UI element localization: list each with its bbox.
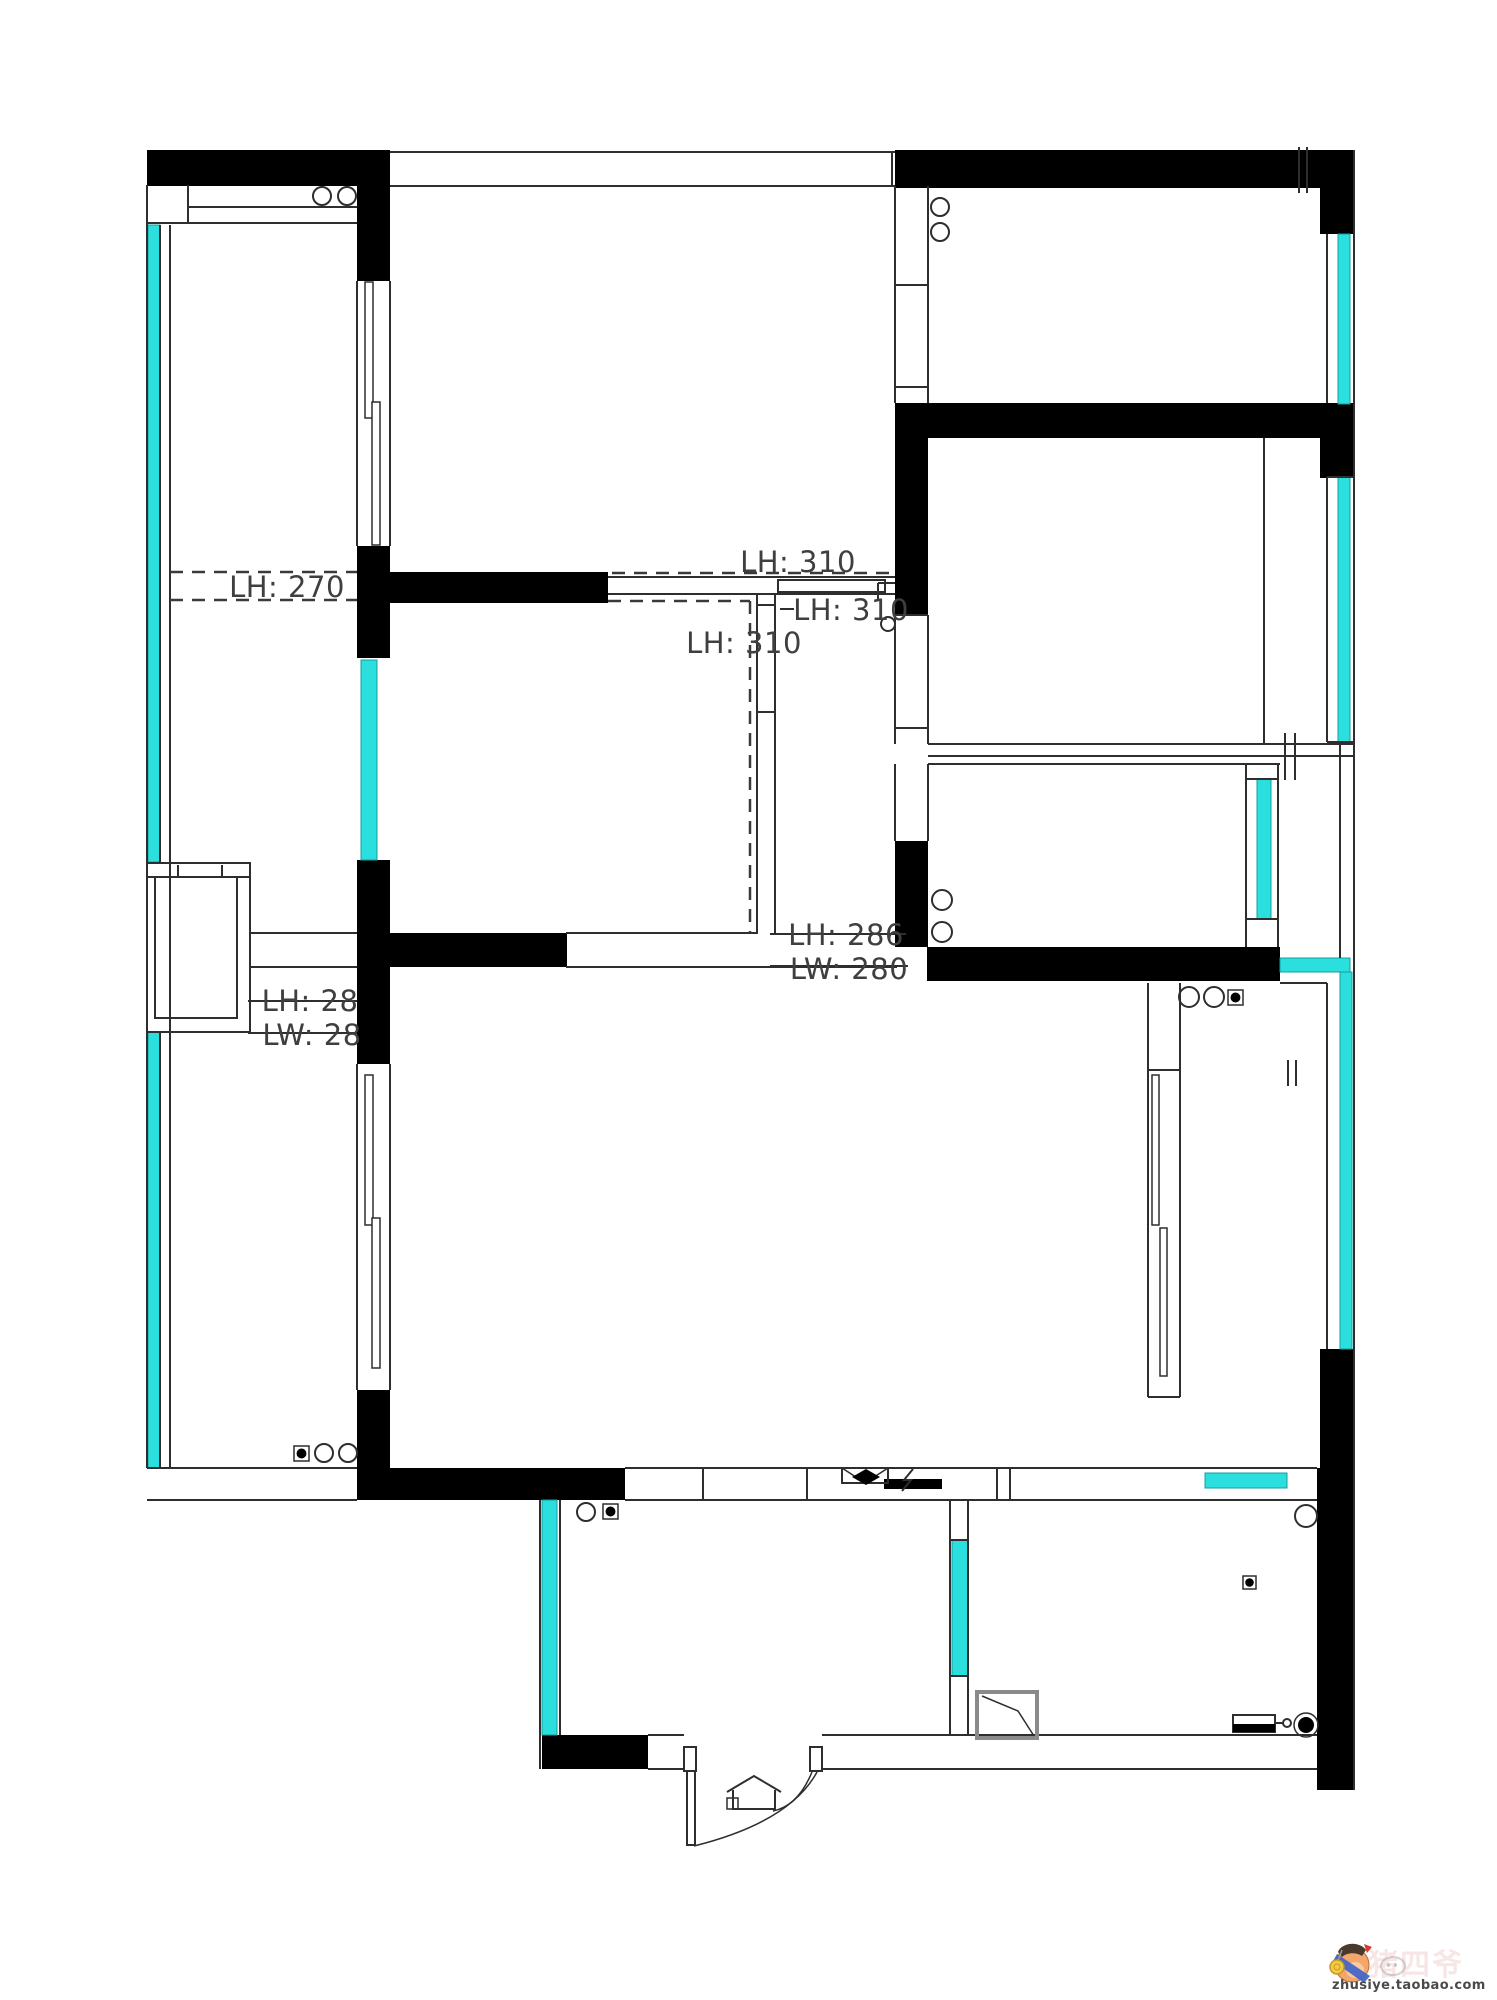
downlight-icon <box>338 187 356 205</box>
wall-segment <box>357 546 390 658</box>
window-glass <box>1280 958 1350 972</box>
wall-segment <box>390 1468 625 1500</box>
wall-segment <box>390 572 608 603</box>
downlight-icon <box>931 198 949 216</box>
downlight-icon <box>932 890 952 910</box>
window-glass <box>1340 972 1352 1349</box>
downlight-icon <box>931 223 949 241</box>
symbol-path <box>733 1790 775 1809</box>
dimension-label: LH: 270 <box>229 570 345 604</box>
downlight-icon <box>313 187 331 205</box>
sliding-door-track <box>1152 1075 1159 1225</box>
sliding-door-track <box>365 1075 373 1225</box>
spotlight-icon <box>1298 1717 1314 1733</box>
floor-plan-svg: LH: 270LH: 310LH: 310LH: 310LH: 286LW: 2… <box>0 0 1497 2000</box>
window-glass <box>148 225 160 862</box>
fixture-outline <box>778 580 885 592</box>
wall-segment <box>1320 150 1354 234</box>
downlight-icon <box>1179 987 1199 1007</box>
ceiling-fixture-dot <box>1231 993 1241 1003</box>
ceiling-fixture-dot <box>297 1449 307 1459</box>
window-glass <box>361 660 377 860</box>
window-glass <box>952 1540 968 1676</box>
wall-segment <box>1317 1468 1354 1790</box>
wall-segment <box>1320 1349 1354 1469</box>
wall-segment <box>542 1735 648 1769</box>
fixture-outline <box>810 1747 822 1771</box>
wall-segment <box>147 150 390 186</box>
dimension-label: LH: 286 <box>788 918 904 952</box>
downlight-icon <box>577 1503 595 1521</box>
window-glass <box>1338 234 1350 404</box>
dimension-label: LH: 28 <box>262 984 359 1018</box>
downlight-icon <box>932 922 952 942</box>
dimension-label: LW: 28 <box>262 1018 361 1052</box>
fixture-outline <box>977 1692 1037 1738</box>
window-glass <box>148 1032 160 1468</box>
sliding-door-track <box>372 402 380 545</box>
wall-segment <box>390 933 567 967</box>
wall-segment <box>927 947 1280 981</box>
wall-segment <box>895 150 1354 188</box>
wall-segment <box>884 1479 942 1489</box>
ceiling-fixture-dot <box>606 1507 616 1517</box>
watermark: 猪四爷 zhusiye.taobao.com <box>1318 1934 1493 1998</box>
watermark-url: zhusiye.taobao.com <box>1332 1978 1486 1993</box>
downlight-icon <box>1295 1505 1317 1527</box>
sliding-door-track <box>365 282 373 418</box>
fixture-fill <box>1233 1724 1275 1732</box>
dimension-label: LH: 310 <box>793 593 909 627</box>
fixture-outline <box>147 863 250 1032</box>
window-glass <box>542 1500 557 1735</box>
dimension-label: LW: 280 <box>790 952 908 986</box>
wall-segment <box>895 403 1354 438</box>
wall-segment <box>357 860 390 1064</box>
sliding-door-track <box>372 1218 380 1368</box>
floor-plan: LH: 270LH: 310LH: 310LH: 310LH: 286LW: 2… <box>0 0 1497 2000</box>
dimension-label: LH: 310 <box>686 626 802 660</box>
window-glass <box>1257 779 1271 919</box>
pig-nose-icon <box>1380 1956 1406 1976</box>
downlight-icon <box>339 1444 357 1462</box>
fixture-outline <box>155 877 237 1018</box>
wall-segment <box>357 1390 390 1500</box>
downlight-icon <box>1283 1719 1291 1727</box>
symbol-path <box>727 1776 781 1792</box>
downlight-icon <box>315 1444 333 1462</box>
fixture-outline <box>687 1771 695 1845</box>
wall-segment <box>357 185 390 281</box>
ceiling-fixture-dot <box>1245 1578 1254 1587</box>
window-glass <box>1205 1473 1287 1488</box>
window-glass <box>1338 477 1350 742</box>
wall-segment <box>1320 438 1354 478</box>
sliding-door-track <box>1160 1228 1167 1376</box>
dimension-label: LH: 310 <box>740 545 856 579</box>
downlight-icon <box>1204 987 1224 1007</box>
symbol-path <box>982 1696 1034 1736</box>
fixture-outline <box>684 1747 696 1771</box>
